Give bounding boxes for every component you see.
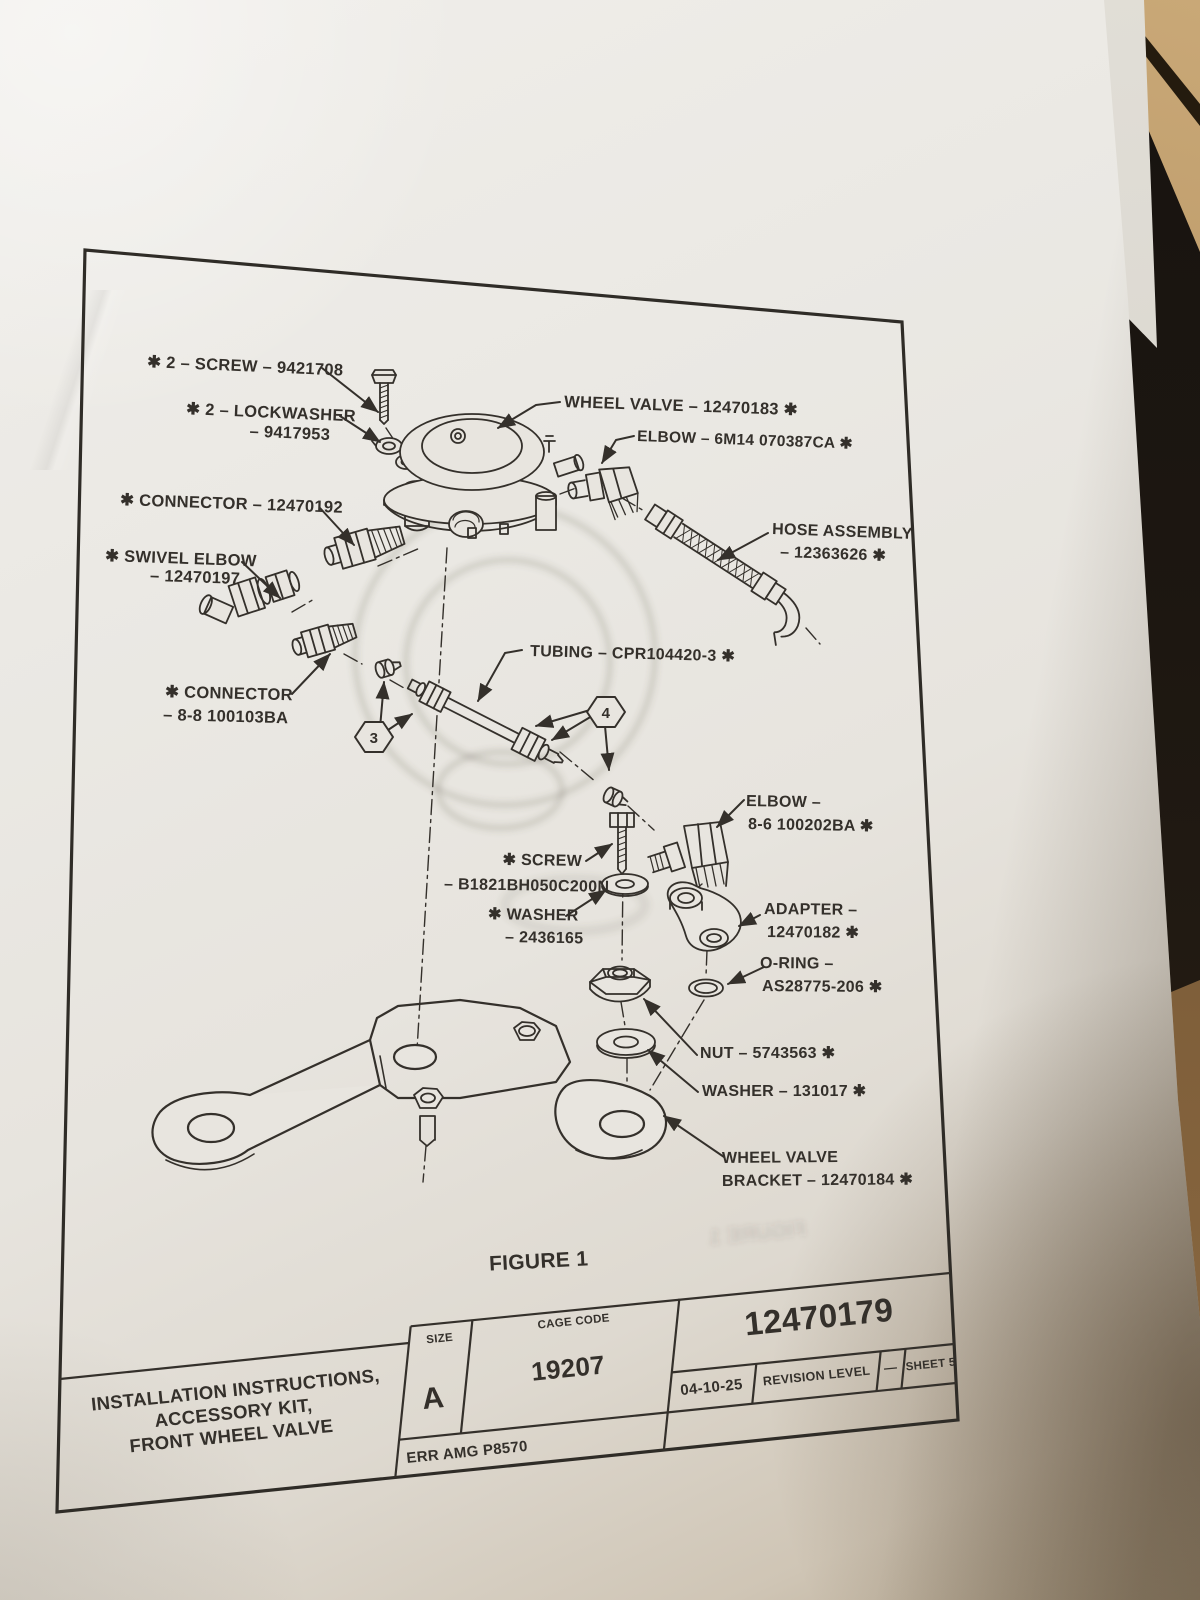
label-nut: NUT – 5743563 ✱: [700, 1045, 835, 1062]
err-note: ERR AMG P8570: [406, 1438, 529, 1467]
screw-b1821-drawing: [610, 813, 634, 874]
wheel-valve-drawing: [384, 414, 585, 538]
label-elbow-86-2: 8-6 100202BA ✱: [748, 816, 874, 835]
callout-4: 4: [602, 705, 611, 722]
label-screw-b1821-1: ✱ SCREW: [502, 852, 582, 870]
label-hose-1: HOSE ASSEMBLY: [772, 521, 913, 543]
label-washer-131017: WASHER – 131017 ✱: [702, 1083, 866, 1100]
label-washer-2436165-2: – 2436165: [505, 929, 584, 947]
washer-131017-drawing: [597, 1029, 655, 1058]
ghost-figure-caption: FIGURE 1: [708, 1218, 807, 1249]
o-ring-drawing: [689, 980, 723, 997]
drawing-figure: FIGURE 1: [0, 0, 1200, 1600]
ferrule-drawing: [374, 657, 402, 679]
bracket-drawing: [152, 1000, 666, 1170]
label-oring-1: O-RING –: [760, 955, 834, 973]
size-value: A: [420, 1381, 445, 1416]
photo-of-installation-drawing: FIGURE 1: [0, 0, 1200, 1600]
elbow-6m14-drawing: [566, 464, 642, 527]
adapter-drawing: [668, 882, 741, 950]
title-block-text: INSTALLATION INSTRUCTIONS, ACCESSORY KIT…: [90, 1291, 956, 1467]
elbow-8-6-drawing: [647, 822, 728, 890]
callout-3: 3: [370, 730, 379, 747]
label-washer-2436165-1: ✱ WASHER: [488, 906, 579, 925]
label-connector-88-2: – 8-8 100103BA: [163, 706, 289, 727]
label-lockwasher-2: – 9417953: [249, 422, 330, 444]
size-label: SIZE: [426, 1332, 454, 1347]
figure-caption: FIGURE 1: [489, 1247, 589, 1275]
label-swivel-elbow-2: – 12470197: [150, 567, 241, 588]
label-tubing: TUBING – CPR104420-3 ✱: [530, 643, 735, 665]
cage-code-label: CAGE CODE: [537, 1312, 610, 1331]
connector-8-8-drawing: [289, 618, 358, 661]
revision-level-label: REVISION LEVEL: [762, 1364, 871, 1389]
cage-code-value: 19207: [530, 1349, 606, 1386]
label-elbow-86-1: ELBOW –: [746, 793, 821, 811]
label-connector-88-1: ✱ CONNECTOR: [165, 683, 293, 704]
label-adapter-2: 12470182 ✱: [767, 924, 859, 942]
label-lockwasher-1: ✱ 2 – LOCKWASHER: [186, 400, 357, 425]
revision-level-value: —: [883, 1359, 898, 1375]
label-screw-b1821-2: – B1821BH050C200N: [444, 876, 609, 896]
label-wheel-valve: WHEEL VALVE – 12470183 ✱: [564, 393, 798, 419]
label-elbow-6m14: ELBOW – 6M14 070387CA ✱: [637, 428, 853, 453]
label-swivel-elbow-1: ✱ SWIVEL ELBOW: [105, 547, 257, 570]
label-oring-2: AS28775-206 ✱: [762, 978, 883, 996]
label-screw: ✱ 2 – SCREW – 9421708: [147, 353, 344, 380]
label-adapter-1: ADAPTER –: [764, 901, 858, 919]
screw-9421708-drawing: [372, 370, 396, 424]
part-number: 12470179: [743, 1291, 895, 1343]
connector-12470192-drawing: [321, 520, 407, 573]
label-bracket-1: WHEEL VALVE: [722, 1149, 838, 1167]
date-value: 04-10-25: [680, 1376, 744, 1399]
label-bracket-2: BRACKET – 12470184 ✱: [722, 1171, 913, 1190]
ferrule2-drawing: [601, 786, 630, 811]
label-hose-2: – 12363626 ✱: [780, 544, 887, 565]
nut-drawing: [590, 967, 650, 1002]
sheet-label: SHEET 5: [905, 1356, 956, 1373]
label-connector-12470192: ✱ CONNECTOR – 12470192: [120, 491, 343, 517]
